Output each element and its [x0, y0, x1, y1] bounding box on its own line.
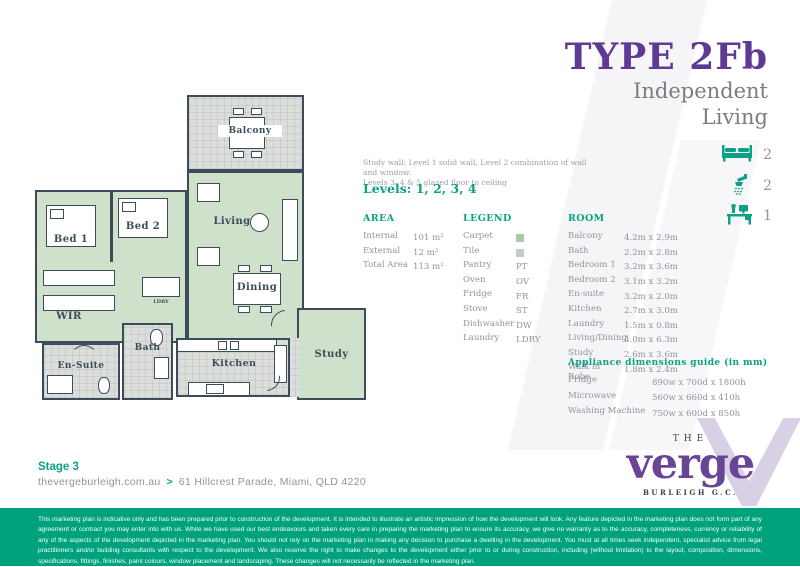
ldry-label: LDRY	[146, 299, 176, 305]
pillow	[50, 209, 64, 219]
row-label: Tile	[463, 246, 516, 261]
balcony-label: Balcony	[218, 125, 282, 137]
wardrobe	[43, 295, 115, 311]
table-row: Kitchen2.7m x 3.0m	[568, 304, 748, 319]
dining-chair	[260, 265, 272, 272]
address-line: thevergeburleigh.com.au>61 Hillcrest Par…	[38, 476, 366, 488]
row-label: Laundry	[463, 333, 516, 348]
table-row: OvenOV	[463, 275, 558, 290]
bed2-label: Bed 2	[115, 221, 171, 232]
legend-swatch	[516, 234, 524, 242]
kitchen-sink	[230, 341, 239, 350]
page-subtitle-line1: Independent	[508, 78, 768, 104]
logo-location: BURLEIGH G.C.	[618, 488, 763, 497]
bedroom-count: 2	[763, 147, 772, 163]
table-row: DishwasherDW	[463, 319, 558, 334]
row-value: OV	[516, 275, 529, 290]
ensuite-toilet	[98, 377, 110, 394]
row-label: Oven	[463, 275, 516, 290]
area-table: AREA Internal101 m²External12 m²Total Ar…	[363, 213, 458, 275]
street-address: 61 Hillcrest Parade, Miami, QLD 4220	[179, 476, 366, 488]
table-row: Bedroom 13.2m x 3.6m	[568, 260, 748, 275]
table-row: LaundryLDRY	[463, 333, 558, 348]
study-count: 1	[763, 208, 772, 224]
row-label: Fridge	[463, 289, 516, 304]
sofa	[282, 199, 298, 261]
row-value: DW	[516, 319, 532, 334]
row-label: Fridge	[568, 375, 652, 391]
balcony-chair	[233, 151, 244, 158]
armchair	[197, 247, 220, 266]
table-row: Laundry1.5m x 0.8m	[568, 319, 748, 334]
bathroom-count: 2	[763, 178, 772, 194]
dining-chair	[260, 306, 272, 313]
row-value: 560w x 660d x 410h	[652, 391, 740, 407]
table-row: FridgeFR	[463, 289, 558, 304]
legend-rows: CarpetTilePantryPTOvenOVFridgeFRStoveSTD…	[463, 231, 558, 348]
appliance-rows: Fridge890w x 700d x 1800hMicrowave560w x…	[568, 375, 768, 422]
appliance-table: Appliance dimensions guide (in mm) Fridg…	[568, 358, 768, 422]
area-rows: Internal101 m²External12 m²Total Area113…	[363, 231, 458, 275]
table-row: External12 m²	[363, 246, 458, 261]
row-label: Bedroom 2	[568, 275, 624, 290]
table-row: Bath2.2m x 2.8m	[568, 246, 748, 261]
row-value: 2.2m x 2.8m	[624, 246, 678, 261]
table-row: Microwave560w x 660d x 410h	[568, 391, 768, 407]
row-value: FR	[516, 289, 528, 304]
row-label: Pantry	[463, 260, 516, 275]
row-value: 101 m²	[413, 231, 444, 246]
legend-header: LEGEND	[463, 213, 558, 224]
row-label: Living/Dining	[568, 333, 624, 348]
verge-logo: THE verge BURLEIGH G.C.	[618, 434, 763, 497]
balcony-chair	[251, 108, 262, 115]
balcony-chair	[233, 108, 244, 115]
row-value: 750w x 600d x 850h	[652, 406, 740, 422]
row-label: Balcony	[568, 231, 624, 246]
feature-bedrooms: 2	[721, 144, 772, 166]
row-label: Dishwasher	[463, 319, 516, 334]
table-row: Total Area113 m²	[363, 260, 458, 275]
row-label: Microwave	[568, 391, 652, 407]
wir-label: WIR	[44, 311, 94, 322]
table-row: Washing Machine750w x 600d x 850h	[568, 406, 768, 422]
row-value: 2.7m x 3.0m	[624, 304, 678, 319]
row-label: Laundry	[568, 319, 624, 334]
kitchen-counter-top	[177, 339, 277, 352]
row-value: LDRY	[516, 333, 540, 348]
pillow	[122, 202, 136, 212]
levels-label: Levels: 1, 2, 3, 4	[363, 181, 477, 196]
row-value: 1.5m x 0.8m	[624, 319, 678, 334]
bed-icon	[721, 144, 753, 166]
row-value: 113 m²	[413, 260, 444, 275]
living-label: Living	[206, 216, 258, 227]
room-table: ROOM Balcony4.2m x 2.9mBath2.2m x 2.8mBe…	[568, 213, 748, 377]
room-header: ROOM	[568, 213, 748, 224]
dining-chair	[238, 265, 250, 272]
row-label: En-suite	[568, 289, 624, 304]
bed1-label: Bed 1	[43, 234, 99, 245]
row-value: 3.2m x 2.0m	[624, 289, 678, 304]
bottom-bar: This marketing plan is indicative only a…	[0, 508, 800, 566]
wardrobe	[43, 270, 115, 286]
page-title: TYPE 2Fb	[508, 36, 768, 78]
row-value: PT	[516, 260, 528, 275]
page-subtitle-line2: Living	[508, 104, 768, 130]
study-label: Study	[299, 349, 364, 360]
kitchen-label: Kitchen	[194, 358, 274, 369]
row-label: Bedroom 1	[568, 260, 624, 275]
disclaimer-text: This marketing plan is indicative only a…	[0, 508, 800, 567]
ensuite-vanity	[47, 375, 73, 394]
armchair	[197, 183, 220, 202]
row-label: External	[363, 246, 413, 261]
row-label: Bath	[568, 246, 624, 261]
row-value: 12 m²	[413, 246, 438, 261]
row-value: 4.0m x 6.3m	[624, 333, 678, 348]
table-row: Carpet	[463, 231, 558, 246]
feature-bathrooms: 2	[731, 173, 772, 199]
bath-label: Bath	[122, 343, 173, 353]
table-row: Fridge890w x 700d x 1800h	[568, 375, 768, 391]
row-value: 890w x 700d x 1800h	[652, 375, 746, 391]
floor-plan: Balcony Living Dining Bed 1 Bed 2 WIR LD…	[30, 95, 370, 425]
room-rows: Balcony4.2m x 2.9mBath2.2m x 2.8mBedroom…	[568, 231, 748, 377]
table-row: En-suite3.2m x 2.0m	[568, 289, 748, 304]
appliance-header: Appliance dimensions guide (in mm)	[568, 358, 768, 368]
website-text: thevergeburleigh.com.au	[38, 476, 160, 488]
table-row: Tile	[463, 246, 558, 261]
logo-name: verge	[618, 444, 763, 484]
table-row: Bedroom 23.1m x 3.2m	[568, 275, 748, 290]
table-row: StoveST	[463, 304, 558, 319]
row-value	[516, 246, 524, 261]
row-label: Stove	[463, 304, 516, 319]
stage-label: Stage 3	[38, 461, 366, 473]
row-label: Total Area	[363, 260, 413, 275]
row-label: Washing Machine	[568, 406, 652, 422]
dining-chair	[238, 306, 250, 313]
row-label: Carpet	[463, 231, 516, 246]
row-value: ST	[516, 304, 528, 319]
arrow-separator: >	[160, 476, 178, 488]
bedroom-divider-wall	[110, 192, 113, 262]
balcony-chair	[251, 151, 262, 158]
legend-swatch	[516, 249, 524, 257]
area-header: AREA	[363, 213, 458, 224]
dining-label: Dining	[230, 282, 284, 293]
row-label: Kitchen	[568, 304, 624, 319]
table-row: PantryPT	[463, 260, 558, 275]
legend-table: LEGEND CarpetTilePantryPTOvenOVFridgeFRS…	[463, 213, 558, 348]
row-value: 3.1m x 3.2m	[624, 275, 678, 290]
row-label: Internal	[363, 231, 413, 246]
table-row: Living/Dining4.0m x 6.3m	[568, 333, 748, 348]
stove	[206, 384, 224, 394]
shower-icon	[731, 173, 753, 199]
ensuite-label: En-Suite	[45, 361, 117, 371]
bath-vanity	[154, 357, 169, 379]
laundry-unit	[142, 277, 180, 297]
row-value	[516, 231, 524, 246]
row-value: 4.2m x 2.9m	[624, 231, 678, 246]
kitchen-sink	[218, 341, 227, 350]
table-row: Internal101 m²	[363, 231, 458, 246]
row-value: 3.2m x 3.6m	[624, 260, 678, 275]
table-row: Balcony4.2m x 2.9m	[568, 231, 748, 246]
